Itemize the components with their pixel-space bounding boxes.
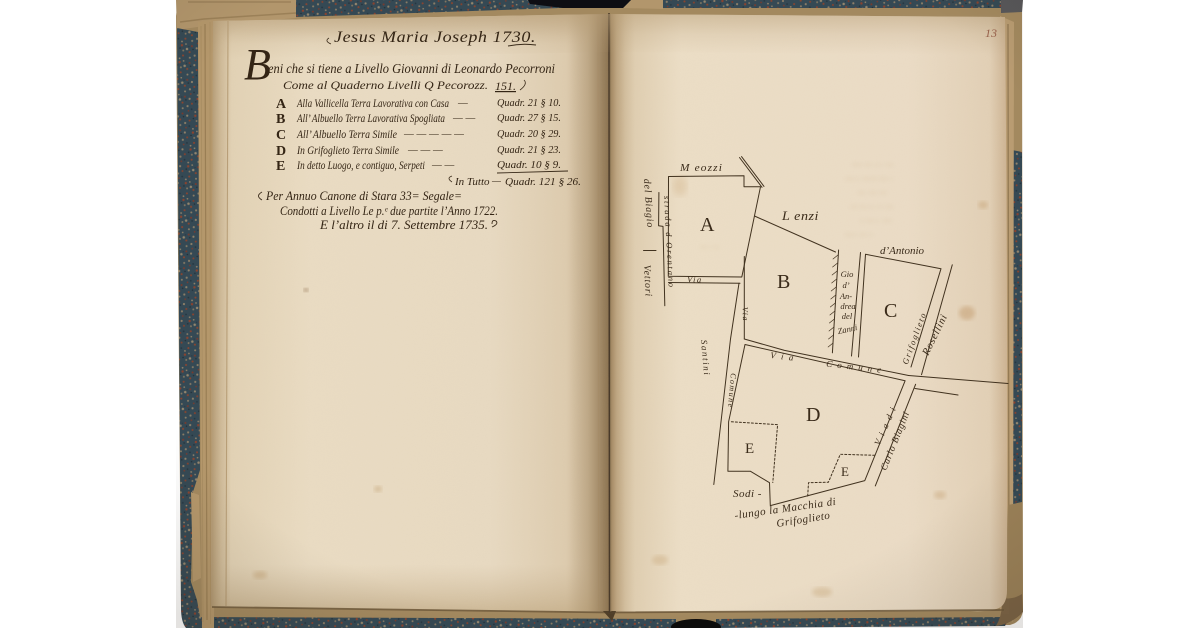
svg-text:Via: Via [741,307,751,322]
svg-text:A: A [276,97,287,112]
svg-text:M eozzi: M eozzi [679,163,723,174]
svg-text:—: — [457,97,468,109]
svg-text:151.: 151. [495,79,516,93]
svg-text:In Tutto: In Tutto [454,176,490,188]
svg-text:E: E [841,464,849,479]
svg-text:Sodi -: Sodi - [733,488,762,500]
svg-text:— — — — —: — — — — — [403,128,464,140]
svg-text:Gio: Gio [841,269,854,279]
svg-text:An-: An- [839,291,852,301]
svg-text:Quadr. 20 § 29.: Quadr. 20 § 29. [497,129,561,140]
svg-text:drea: drea [840,301,855,311]
svg-text:— —: — — [431,159,455,171]
svg-text:— — —: — — — [407,144,443,156]
svg-text:C: C [884,300,897,322]
svg-text:B: B [777,271,790,293]
svg-text:13: 13 [985,26,997,40]
svg-text:Jesus Maria Joseph 1730.: Jesus Maria Joseph 1730. [334,29,536,46]
svg-text:Come al Quaderno Livelli Q Pec: Come al Quaderno Livelli Q Pecorozz. [283,78,488,92]
svg-text:Per Annuo Canone di Stara 33=: Per Annuo Canone di Stara 33= Segale= [265,188,462,203]
svg-text:E l’altro il di 7. Settembre 1: E l’altro il di 7. Settembre 1735. [319,218,488,232]
svg-text:E: E [276,159,285,174]
svg-text:d’: d’ [842,280,849,290]
svg-text:Quadr. 21 § 10.: Quadr. 21 § 10. [497,98,561,109]
svg-text:A: A [700,214,715,236]
svg-text:B: B [244,40,271,89]
svg-text:Quadr. 121 § 26.: Quadr. 121 § 26. [505,177,581,188]
svg-text:All’ Albuello Terra Simile: All’ Albuello Terra Simile [296,127,397,141]
svg-text:Vettori: Vettori [641,265,654,298]
svg-text:In Grifoglieto Terra Simile: In Grifoglieto Terra Simile [296,143,399,157]
svg-text:C: C [276,128,286,143]
svg-text:Condotti a Livello Le p.ᵉ due: Condotti a Livello Le p.ᵉ due partite l’… [280,204,498,218]
svg-text:All’ Albuello Terra Lavorativa: All’ Albuello Terra Lavorativa Spogliata [296,111,445,125]
svg-text:— —: — — [452,112,476,124]
svg-text:Quadr. 21 § 23.: Quadr. 21 § 23. [497,145,561,156]
svg-text:D: D [806,404,820,426]
svg-text:In detto Luogo, e contiguo, Se: In detto Luogo, e contiguo, Serpeti [296,158,425,172]
svg-text:L enzi: L enzi [781,208,819,223]
svg-text:eni che si tiene a Livello Gio: eni che si tiene a Livello Giovanni di L… [268,61,555,76]
svg-text:D: D [276,144,286,159]
svg-text:Quadr. 10 § 9.: Quadr. 10 § 9. [497,160,561,171]
svg-text:d’Antonio: d’Antonio [880,245,924,257]
svg-text:Via: Via [687,274,703,285]
svg-text:B: B [276,112,285,127]
svg-text:—: — [491,176,501,187]
svg-text:Quadr. 27 § 15.: Quadr. 27 § 15. [497,113,561,124]
svg-text:E: E [745,441,754,457]
svg-text:Alla Vallicella Terra Lavorati: Alla Vallicella Terra Lavorativa con Cas… [296,96,449,110]
svg-text:del: del [842,311,853,321]
